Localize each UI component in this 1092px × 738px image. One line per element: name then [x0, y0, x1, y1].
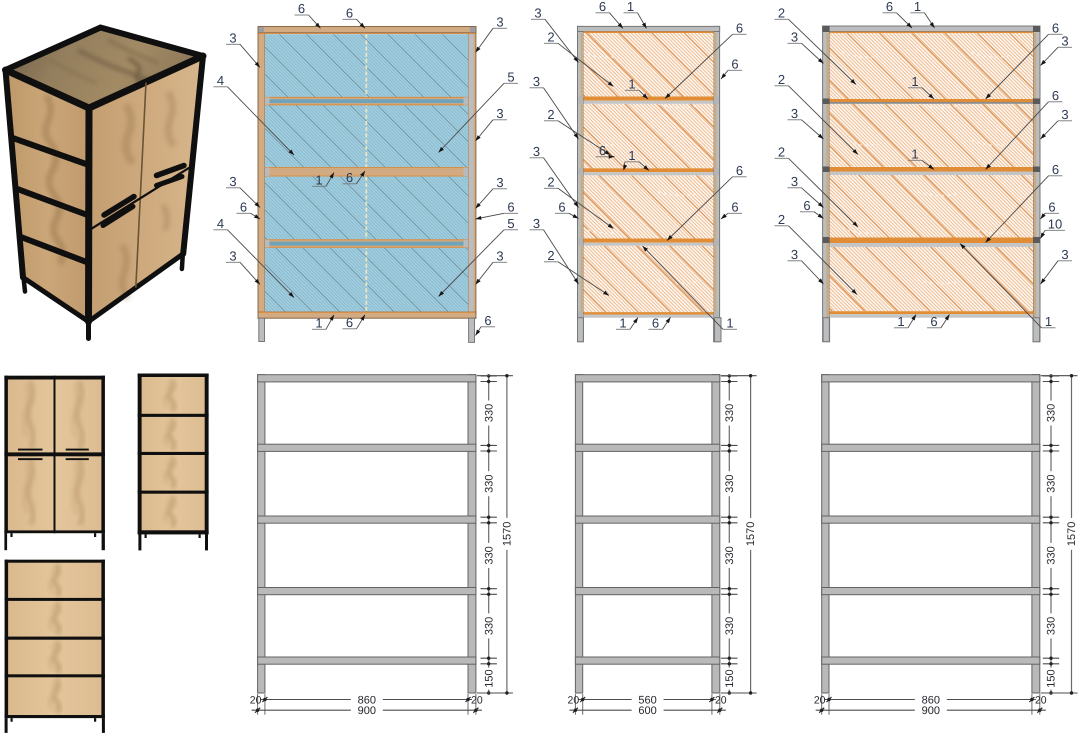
svg-text:2: 2 [778, 72, 785, 87]
svg-text:2: 2 [778, 212, 785, 227]
svg-text:6: 6 [1052, 88, 1059, 103]
svg-text:900: 900 [922, 705, 940, 717]
svg-text:150: 150 [483, 669, 495, 687]
svg-text:4: 4 [217, 216, 224, 231]
svg-text:6: 6 [1052, 21, 1059, 36]
svg-text:3: 3 [534, 6, 541, 21]
svg-text:6: 6 [346, 170, 353, 185]
svg-text:6: 6 [507, 200, 514, 215]
svg-text:6: 6 [736, 21, 743, 36]
svg-text:3: 3 [533, 216, 540, 231]
svg-text:6: 6 [731, 200, 738, 215]
svg-text:20: 20 [814, 694, 826, 706]
svg-text:3: 3 [1061, 107, 1068, 122]
svg-text:1: 1 [914, 0, 921, 14]
svg-text:1570: 1570 [502, 522, 514, 546]
svg-text:6: 6 [484, 313, 491, 328]
svg-text:6: 6 [599, 0, 606, 14]
svg-text:330: 330 [1046, 617, 1058, 635]
svg-text:5: 5 [507, 216, 514, 231]
svg-text:1: 1 [911, 147, 918, 162]
svg-text:1: 1 [897, 314, 904, 329]
svg-text:6: 6 [599, 143, 606, 158]
svg-text:1570: 1570 [1066, 522, 1078, 546]
svg-text:1: 1 [726, 316, 733, 331]
svg-text:20: 20 [715, 694, 727, 706]
svg-text:6: 6 [652, 316, 659, 331]
svg-text:6: 6 [803, 198, 810, 213]
svg-text:1: 1 [911, 74, 918, 89]
svg-text:1: 1 [315, 173, 322, 188]
svg-text:3: 3 [533, 144, 540, 159]
svg-text:3: 3 [496, 15, 503, 30]
svg-text:330: 330 [724, 617, 736, 635]
svg-text:20: 20 [568, 694, 580, 706]
svg-text:20: 20 [1035, 694, 1047, 706]
svg-text:2: 2 [778, 145, 785, 160]
svg-text:10: 10 [1048, 217, 1062, 232]
svg-text:6: 6 [930, 314, 937, 329]
svg-text:6: 6 [558, 200, 565, 215]
svg-text:2: 2 [547, 248, 554, 263]
svg-text:3: 3 [791, 174, 798, 189]
svg-text:1: 1 [628, 77, 635, 92]
svg-text:330: 330 [1046, 546, 1058, 564]
svg-text:3: 3 [496, 106, 503, 121]
svg-text:5: 5 [507, 70, 514, 85]
svg-text:330: 330 [724, 475, 736, 493]
svg-text:150: 150 [1046, 669, 1058, 687]
svg-text:1: 1 [628, 148, 635, 163]
svg-text:6: 6 [731, 57, 738, 72]
svg-text:20: 20 [250, 694, 262, 706]
svg-text:6: 6 [1052, 162, 1059, 177]
svg-text:330: 330 [1046, 475, 1058, 493]
svg-text:3: 3 [791, 106, 798, 121]
svg-text:3: 3 [229, 31, 236, 46]
svg-text:1: 1 [315, 316, 322, 331]
svg-text:330: 330 [724, 546, 736, 564]
svg-text:3: 3 [1061, 247, 1068, 262]
svg-text:3: 3 [1061, 34, 1068, 49]
svg-text:600: 600 [638, 705, 656, 717]
svg-text:6: 6 [1048, 200, 1055, 215]
svg-text:4: 4 [217, 73, 224, 88]
svg-text:1570: 1570 [745, 522, 757, 546]
svg-text:1: 1 [627, 0, 634, 14]
svg-text:2: 2 [547, 30, 554, 45]
svg-text:6: 6 [886, 0, 893, 14]
svg-text:330: 330 [1046, 404, 1058, 422]
svg-text:330: 330 [483, 617, 495, 635]
svg-text:330: 330 [483, 475, 495, 493]
svg-text:6: 6 [736, 163, 743, 178]
svg-text:2: 2 [547, 107, 554, 122]
svg-text:6: 6 [240, 200, 247, 215]
svg-text:6: 6 [346, 315, 353, 330]
svg-text:2: 2 [778, 6, 785, 21]
svg-text:2: 2 [547, 175, 554, 190]
svg-text:20: 20 [471, 694, 483, 706]
svg-text:900: 900 [358, 705, 376, 717]
svg-text:3: 3 [496, 249, 503, 264]
svg-text:330: 330 [724, 404, 736, 422]
svg-text:6: 6 [346, 6, 353, 21]
svg-text:1: 1 [1045, 314, 1052, 329]
svg-text:3: 3 [533, 74, 540, 89]
svg-text:3: 3 [229, 249, 236, 264]
svg-text:330: 330 [483, 546, 495, 564]
svg-text:150: 150 [724, 669, 736, 687]
svg-text:6: 6 [298, 1, 305, 16]
svg-text:3: 3 [791, 30, 798, 45]
svg-text:3: 3 [229, 174, 236, 189]
svg-text:3: 3 [496, 175, 503, 190]
svg-text:330: 330 [483, 404, 495, 422]
svg-text:1: 1 [619, 316, 626, 331]
svg-text:3: 3 [791, 247, 798, 262]
